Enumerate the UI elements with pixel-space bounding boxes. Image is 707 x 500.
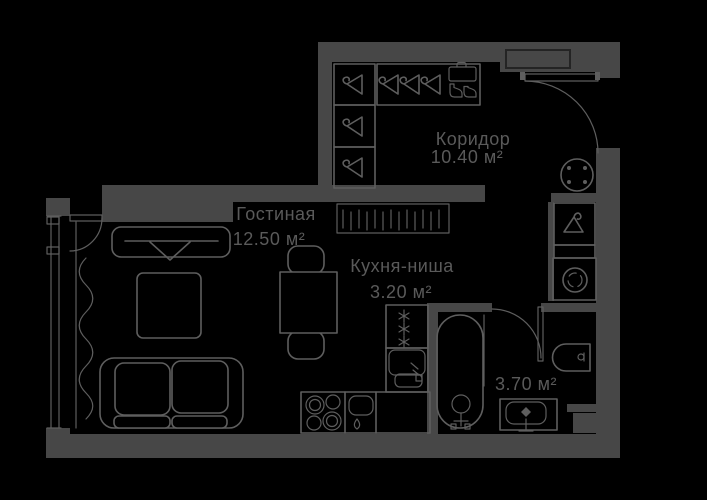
boots-icon — [450, 84, 476, 97]
coffee-table-icon — [137, 273, 201, 338]
kitchen-label: Кухня-ниша — [350, 256, 454, 276]
bath-top-right-wall — [541, 303, 598, 312]
closet-cell — [554, 203, 595, 245]
hanger-icon — [379, 75, 398, 94]
left-top-stub — [46, 198, 70, 216]
bath-top-left-wall — [427, 303, 492, 312]
fridge-icon — [386, 305, 428, 348]
bathroom-door-icon — [492, 307, 543, 361]
dining-set — [280, 246, 337, 359]
hanger-icon — [343, 117, 362, 136]
bathroom: 3.70 м² — [437, 307, 590, 431]
suitcase-icon — [449, 63, 476, 82]
shaft-support-wall — [567, 404, 620, 412]
corridor-label: Коридор — [436, 129, 511, 149]
corridor-left-wall — [318, 42, 332, 202]
north-band-wall — [102, 185, 485, 202]
living-top-wall — [102, 202, 233, 222]
living-area: 12.50 м² — [233, 229, 305, 249]
living-label: Гостиная — [236, 204, 316, 224]
living-room: Гостиная 12.50 м² — [47, 204, 337, 428]
balcony-door-icon — [70, 215, 102, 251]
entrance-door-leaf — [525, 74, 598, 81]
curtain-icon — [79, 258, 93, 419]
door-jamb — [520, 72, 525, 80]
ventilation-shaft — [573, 413, 597, 433]
corridor-area: 10.40 м² — [431, 147, 503, 167]
door-jamb — [595, 72, 600, 80]
hanger-icon — [343, 75, 362, 94]
bathroom-area: 3.70 м² — [495, 374, 557, 394]
hanger-icon — [400, 75, 419, 94]
washing-machine-icon — [553, 258, 596, 300]
bottom-wall — [46, 434, 620, 458]
hanger-icon — [564, 213, 583, 232]
stool-icon — [561, 159, 593, 191]
chair-icon — [288, 331, 324, 359]
tv-stand-icon — [112, 227, 230, 260]
hanger-icon — [421, 75, 440, 94]
storage-column — [553, 203, 596, 300]
entrance-door-swing — [525, 81, 598, 153]
sofa-icon — [100, 358, 243, 428]
hanger-icon — [343, 158, 362, 177]
wardrobe — [334, 63, 480, 189]
floor-plan: Коридор 10.40 м² — [0, 0, 707, 500]
kitchen-sink-icon — [349, 396, 373, 429]
washbasin-icon — [500, 399, 557, 431]
chair-icon — [288, 246, 324, 274]
shelf-cell — [554, 245, 595, 258]
kitchen-area: 3.20 м² — [370, 282, 432, 302]
window-icon — [47, 216, 76, 428]
dining-table-icon — [280, 272, 337, 333]
toilet-icon — [553, 344, 591, 371]
radiator-icon — [337, 204, 449, 233]
under-counter-appliance-icon — [386, 348, 428, 392]
cooktop-icon — [306, 395, 341, 430]
passage-chunk-wall — [551, 193, 598, 202]
bathtub-icon — [437, 315, 483, 429]
